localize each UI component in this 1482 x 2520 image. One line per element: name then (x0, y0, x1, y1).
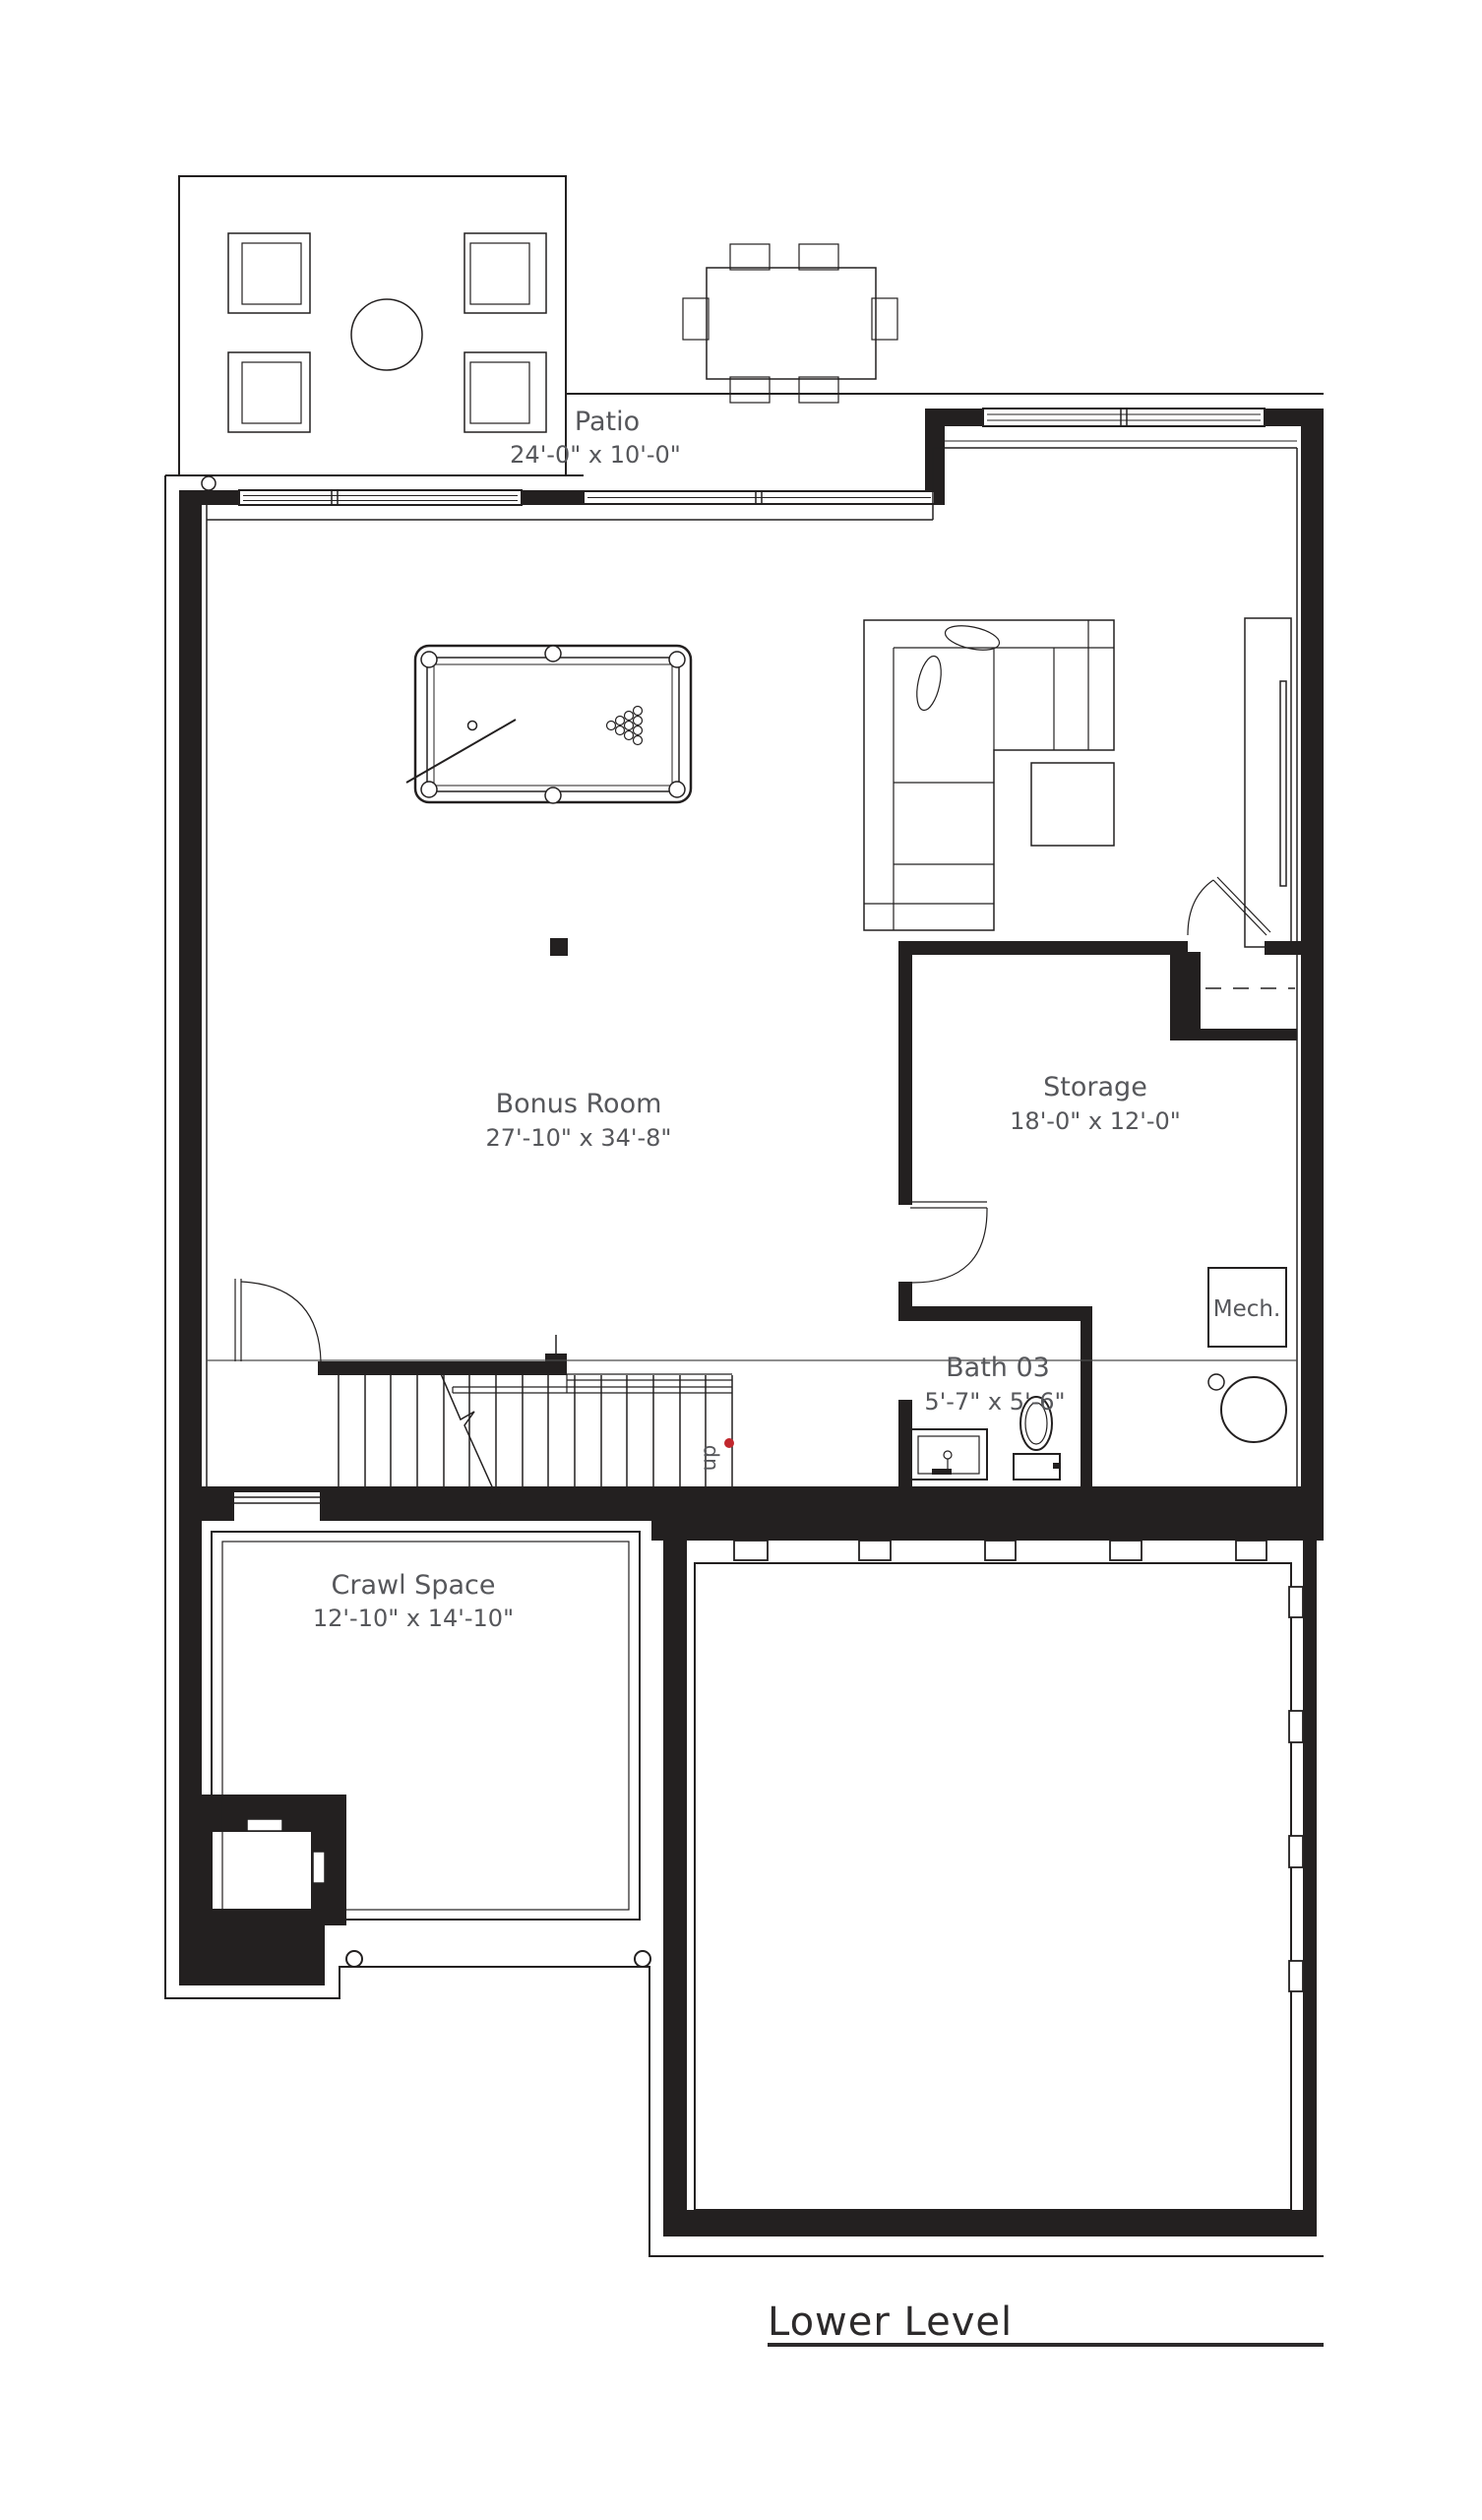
wall-bath-right (1081, 1306, 1092, 1488)
pillow-icon (912, 654, 945, 712)
window (983, 409, 1265, 426)
crawl-space-dims: 12'-10" x 14'-10" (313, 1605, 514, 1632)
unfinished-room (695, 1541, 1303, 2210)
wall-corner-block (179, 1920, 325, 1985)
pocket-icon (421, 652, 437, 667)
patio-label: Patio (575, 407, 640, 437)
wall-garage-bottom (663, 2210, 1317, 2236)
dining-chair (730, 377, 770, 403)
wall-segment (945, 409, 983, 426)
pocket-icon (669, 652, 685, 667)
stair-marker-dot (724, 1438, 734, 1448)
mech-area (1208, 1268, 1286, 1442)
room-labels: Patio 24'-0" x 10'-0" Bonus Room 27'-10"… (313, 407, 1280, 1632)
bonus-room-dims: 27'-10" x 34'-8" (486, 1124, 672, 1152)
stairs-up-label: up (697, 1445, 720, 1472)
furring-tabs-top (734, 1541, 1266, 1560)
window (584, 491, 935, 504)
pocket-icon (669, 782, 685, 797)
cue-ball-icon (468, 722, 477, 730)
floor-plan: up (0, 0, 1482, 2520)
wall-storage-left (898, 941, 912, 1205)
wall-left (179, 490, 202, 1925)
mech-label: Mech. (1213, 1296, 1281, 1322)
dining-table (707, 268, 876, 379)
bath-label: Bath 03 (946, 1353, 1050, 1383)
door-alcove (235, 1279, 321, 1361)
post-marker (550, 938, 568, 956)
patio-dining-set (683, 244, 897, 403)
wall-segment (522, 490, 584, 505)
wall-garage-top (651, 1488, 1324, 1541)
ball-rack-icon (607, 707, 643, 745)
wall-storage-top (898, 941, 1188, 955)
bonus-room-label: Bonus Room (496, 1089, 662, 1119)
patio-outline (179, 176, 566, 475)
pocket-icon (545, 787, 561, 803)
sliding-door-window (239, 490, 522, 505)
storage-label: Storage (1043, 1072, 1147, 1102)
plan-title: Lower Level (768, 2299, 1013, 2345)
patio-armchair (464, 233, 546, 313)
stair-handrail (453, 1374, 732, 1393)
wall-stairs-top (318, 1361, 565, 1375)
wall-right-lower (1303, 1521, 1317, 2236)
door-storage (910, 1202, 987, 1283)
ottoman (1031, 763, 1114, 846)
floor-plan-page: up (0, 0, 1482, 2520)
wall-right-upper (1301, 409, 1324, 1521)
windows (239, 409, 1265, 505)
patio-armchair (464, 352, 546, 432)
title-underline (768, 2343, 1324, 2347)
wall-niche-bottom (1170, 1029, 1297, 1040)
wall-segment (179, 490, 239, 505)
patio-armchair (228, 352, 310, 432)
pipe-icon (1208, 1374, 1224, 1390)
room-outline (695, 1563, 1291, 2210)
well-notch (313, 1852, 325, 1883)
dining-chair (730, 244, 770, 270)
wall-bath-top (910, 1306, 1092, 1321)
pocket-icon (421, 782, 437, 797)
dining-chair (683, 298, 709, 340)
sectional-sofa (864, 620, 1114, 930)
pillow-icon (943, 621, 1001, 654)
stairs: up (339, 1369, 734, 1504)
foundation-outline (165, 394, 1324, 2256)
tv-icon (1280, 681, 1286, 886)
door-entry (1188, 877, 1270, 935)
patio-side-table (351, 299, 422, 370)
pocket-icon (545, 646, 561, 661)
cue-stick-icon (406, 720, 516, 783)
post-marker (545, 1354, 567, 1375)
tv-console (1245, 618, 1291, 947)
plan-title-block: Lower Level (768, 2299, 1324, 2347)
wall-door-stub (1265, 941, 1301, 955)
storage-dims: 18'-0" x 12'-0" (1010, 1107, 1181, 1135)
wall-niche-left (1170, 952, 1201, 1039)
pool-table (406, 646, 691, 803)
post-footing-icon (346, 1951, 362, 1967)
column-marker-icon (202, 476, 216, 490)
post-footing-icon (635, 1951, 650, 1967)
water-heater-icon (1221, 1377, 1286, 1442)
bath-dims: 5'-7" x 5'-6" (924, 1388, 1065, 1416)
crawl-space-label: Crawl Space (332, 1570, 496, 1601)
dining-chair (799, 244, 838, 270)
wall-garage-left (663, 1541, 687, 2213)
interior-face-lines (207, 441, 1297, 1486)
dining-chair (799, 377, 838, 403)
patio-armchair (228, 233, 310, 313)
patio-dims: 24'-0" x 10'-0" (510, 441, 681, 469)
wall-storage-left (898, 1282, 912, 1321)
stair-treads (339, 1375, 732, 1486)
sink-vanity-icon (910, 1429, 987, 1480)
well-hatch (247, 1819, 282, 1831)
window-well (212, 1831, 312, 1910)
